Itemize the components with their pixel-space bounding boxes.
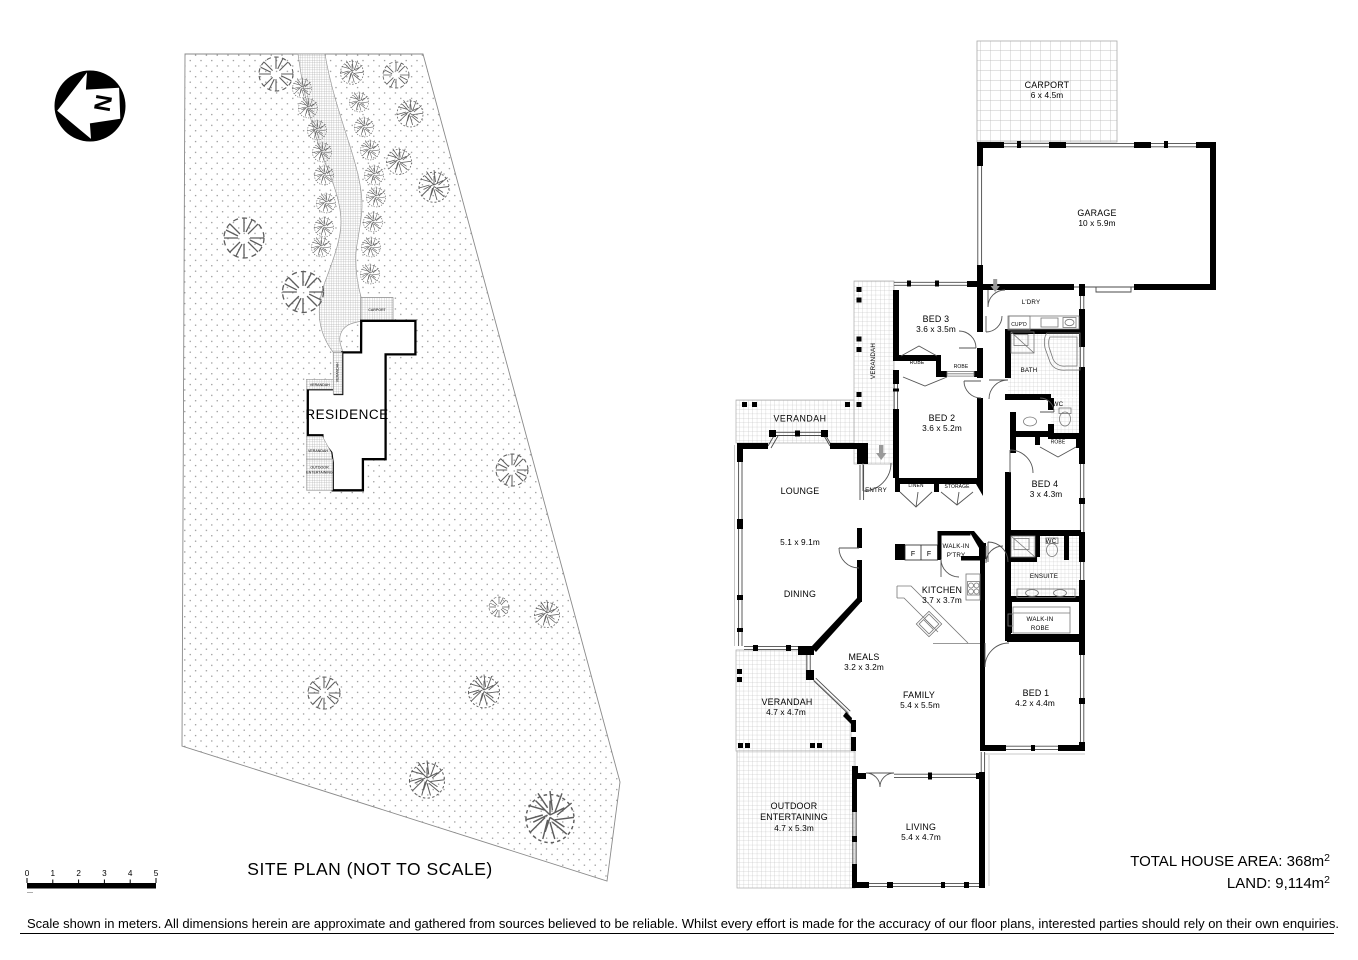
svg-text:GARAGE: GARAGE — [1077, 208, 1116, 218]
svg-text:5.4 x 4.7m: 5.4 x 4.7m — [901, 832, 941, 842]
svg-text:FAMILY: FAMILY — [903, 690, 935, 700]
svg-text:WC: WC — [1046, 538, 1057, 545]
svg-text:3.6 x 3.5m: 3.6 x 3.5m — [916, 324, 956, 334]
svg-text:LOUNGE: LOUNGE — [781, 486, 820, 496]
svg-text:10 x 5.9m: 10 x 5.9m — [1078, 218, 1115, 228]
svg-text:VERANDAH: VERANDAH — [336, 362, 340, 382]
svg-text:VERANDAH: VERANDAH — [774, 414, 827, 424]
svg-text:CARPORT: CARPORT — [1025, 80, 1070, 90]
svg-text:ENTRY: ENTRY — [865, 487, 887, 494]
svg-text:F: F — [911, 551, 915, 558]
svg-text:ROBE: ROBE — [1051, 440, 1066, 446]
svg-text:4.2 x 4.4m: 4.2 x 4.4m — [1015, 698, 1055, 708]
svg-text:LAND: 9,114m2: LAND: 9,114m2 — [1227, 874, 1330, 892]
svg-text:BED 4: BED 4 — [1032, 479, 1059, 489]
svg-text:4.7 x 5.3m: 4.7 x 5.3m — [774, 823, 814, 833]
svg-text:WALK-IN: WALK-IN — [1027, 616, 1054, 623]
svg-text:Scale shown in meters. All dim: Scale shown in meters. All dimensions he… — [27, 916, 1339, 931]
svg-text:CUP'D: CUP'D — [1011, 322, 1027, 328]
svg-text:ROBE: ROBE — [954, 364, 969, 370]
svg-text:VERANDAH: VERANDAH — [870, 343, 877, 379]
svg-text:BED 2: BED 2 — [929, 413, 956, 423]
svg-text:MEALS: MEALS — [848, 652, 879, 662]
svg-text:WC: WC — [1053, 401, 1064, 408]
svg-text:BED 1: BED 1 — [1023, 688, 1050, 698]
svg-text:OUTDOOR: OUTDOOR — [771, 801, 818, 811]
svg-text:ROBE: ROBE — [910, 360, 925, 366]
svg-text:6 x 4.5m: 6 x 4.5m — [1031, 90, 1064, 100]
svg-text:VERANDAH: VERANDAH — [310, 383, 330, 387]
svg-text:F: F — [927, 551, 931, 558]
svg-text:2: 2 — [76, 869, 81, 878]
svg-text:VERANDAH: VERANDAH — [762, 697, 813, 707]
svg-text:1: 1 — [51, 869, 56, 878]
svg-text:0: 0 — [25, 869, 30, 878]
svg-text:WALK-IN: WALK-IN — [943, 543, 970, 550]
svg-text:ENTERTAINING: ENTERTAINING — [760, 812, 828, 822]
svg-text:L'DRY: L'DRY — [1022, 299, 1041, 306]
svg-text:VERANDAH: VERANDAH — [308, 449, 328, 453]
svg-text:ROBE: ROBE — [1031, 625, 1049, 632]
svg-text:ENTERTAINING: ENTERTAINING — [306, 471, 333, 475]
svg-text:ENSUITE: ENSUITE — [1030, 573, 1058, 580]
svg-text:P'TRY: P'TRY — [947, 552, 966, 559]
svg-text:3 x 4.3m: 3 x 4.3m — [1030, 489, 1063, 499]
svg-text:LINEN: LINEN — [908, 483, 924, 489]
svg-text:TOTAL HOUSE AREA: 368m2: TOTAL HOUSE AREA: 368m2 — [1130, 852, 1330, 870]
svg-text:BED 3: BED 3 — [923, 314, 950, 324]
svg-text:STORAGE: STORAGE — [944, 484, 970, 490]
svg-text:5: 5 — [154, 869, 159, 878]
svg-text:4.7 x 4.7m: 4.7 x 4.7m — [766, 707, 806, 717]
svg-text:LIVING: LIVING — [906, 822, 936, 832]
svg-text:KITCHEN: KITCHEN — [922, 585, 962, 595]
svg-text:3.6 x 5.2m: 3.6 x 5.2m — [922, 423, 962, 433]
svg-text:5.1 x 9.1m: 5.1 x 9.1m — [780, 537, 820, 547]
svg-text:3.2 x 3.2m: 3.2 x 3.2m — [844, 662, 884, 672]
svg-text:CARPORT: CARPORT — [368, 308, 386, 312]
svg-text:4: 4 — [128, 869, 133, 878]
svg-text:3: 3 — [102, 869, 107, 878]
svg-text:OUTDOOR: OUTDOOR — [310, 466, 329, 470]
svg-text:RESIDENCE: RESIDENCE — [305, 407, 388, 422]
svg-text:SITE PLAN (NOT TO SCALE): SITE PLAN (NOT TO SCALE) — [247, 859, 492, 879]
svg-text:BATH: BATH — [1021, 367, 1038, 374]
svg-text:5.4 x 5.5m: 5.4 x 5.5m — [900, 700, 940, 710]
svg-text:3.7 x 3.7m: 3.7 x 3.7m — [922, 595, 962, 605]
svg-text:DINING: DINING — [784, 589, 816, 599]
